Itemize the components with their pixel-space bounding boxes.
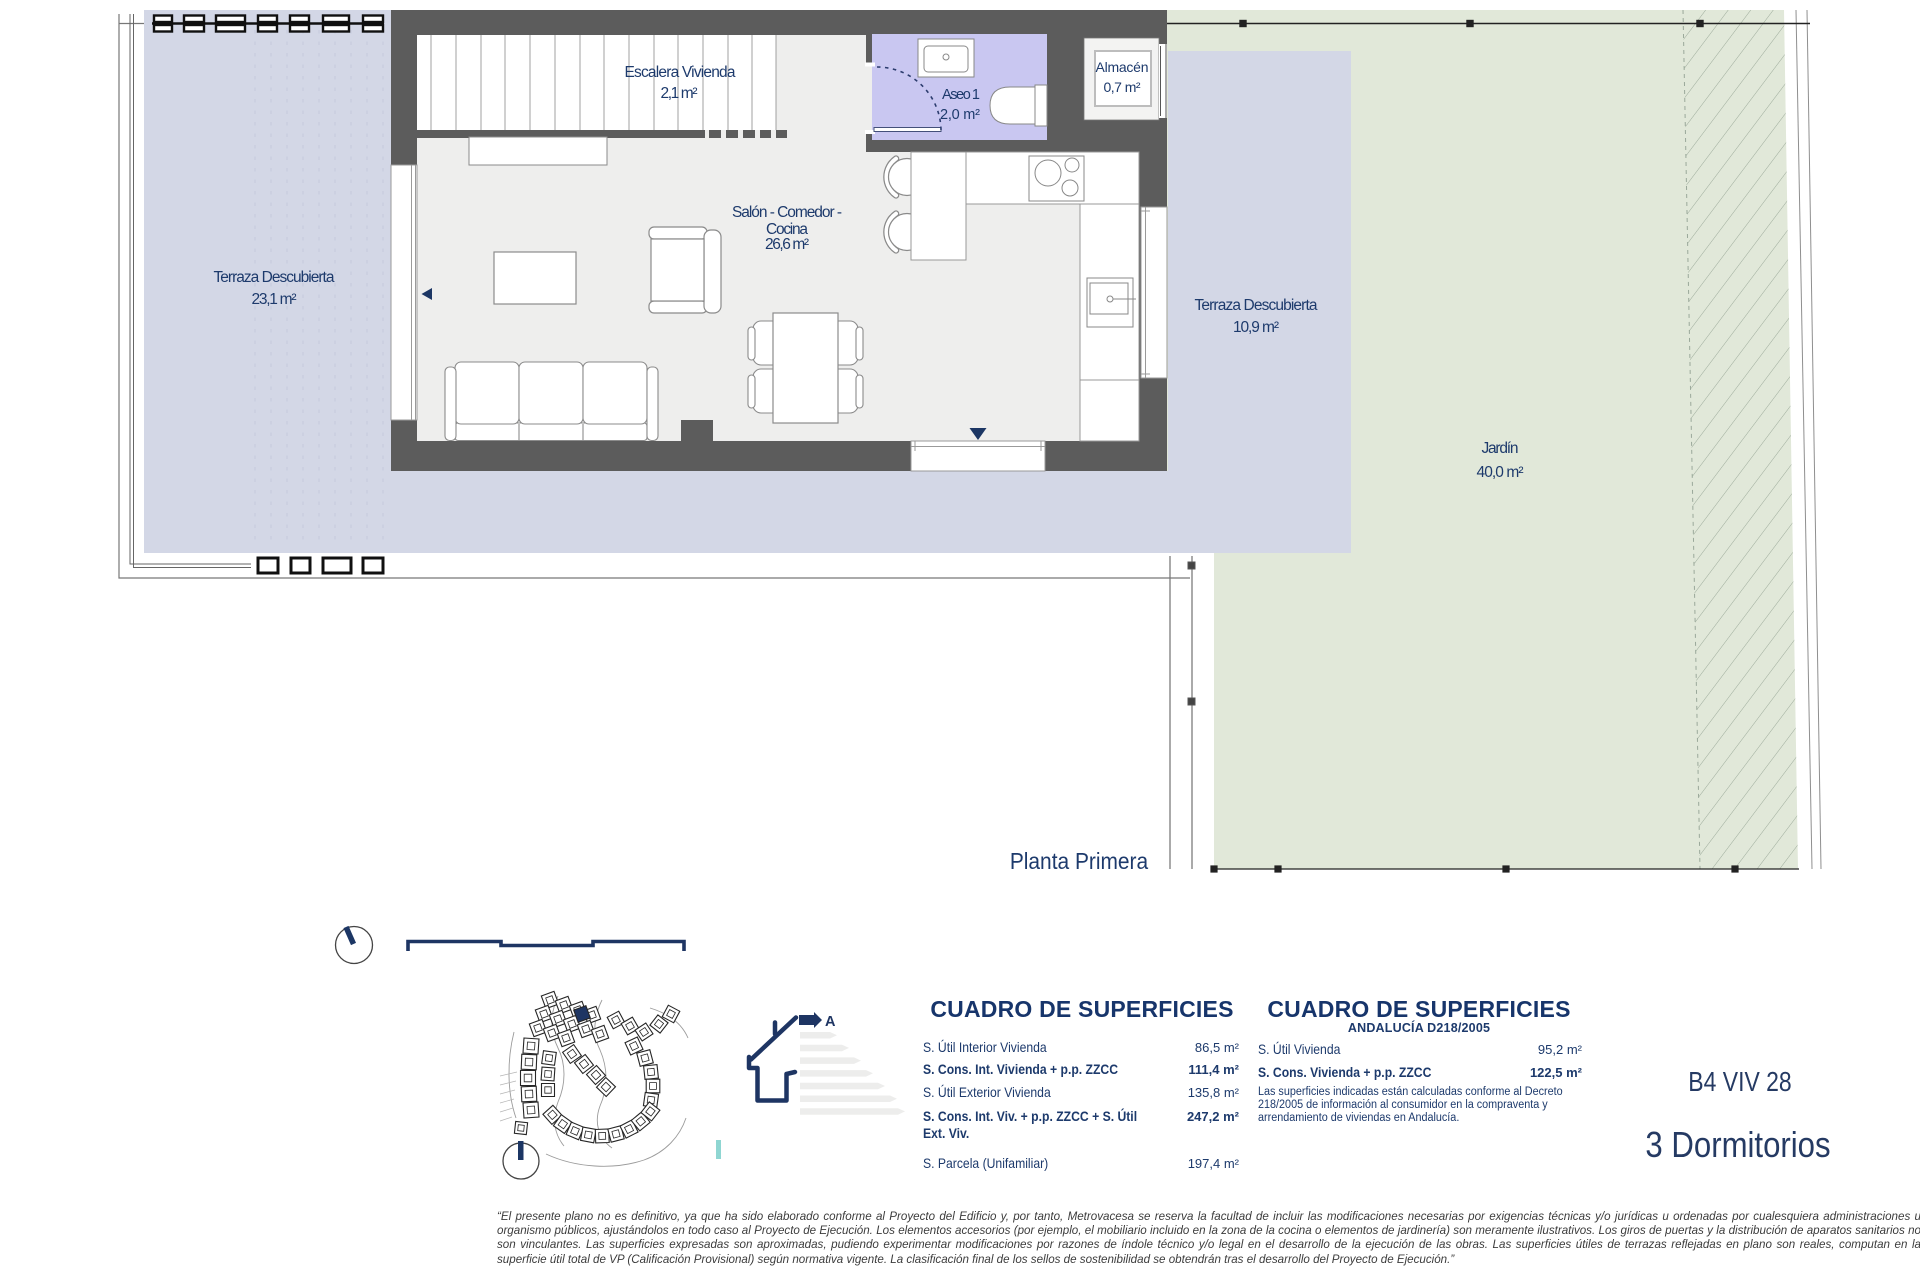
svg-text:Terraza Descubierta: Terraza Descubierta [1195,297,1318,314]
svg-text:40,0 m²: 40,0 m² [1477,464,1524,481]
svg-text:A: A [825,1014,836,1030]
svg-text:Escalera Vivienda: Escalera Vivienda [625,64,736,81]
svg-text:Aseo 1: Aseo 1 [942,87,980,103]
svg-text:2,1 m²: 2,1 m² [661,85,698,102]
svg-text:Almacén: Almacén [1096,59,1149,75]
svg-text:Terraza Descubierta: Terraza Descubierta [214,269,335,286]
svg-text:Jardín: Jardín [1482,440,1519,457]
svg-text:0,7 m²: 0,7 m² [1104,79,1141,95]
svg-text:2,0 m²: 2,0 m² [940,107,980,123]
svg-text:Salón - Comedor -: Salón - Comedor - [732,204,842,221]
svg-text:10,9 m²: 10,9 m² [1233,319,1279,336]
svg-text:26,6 m²: 26,6 m² [765,236,809,253]
svg-text:23,1 m²: 23,1 m² [252,291,297,308]
